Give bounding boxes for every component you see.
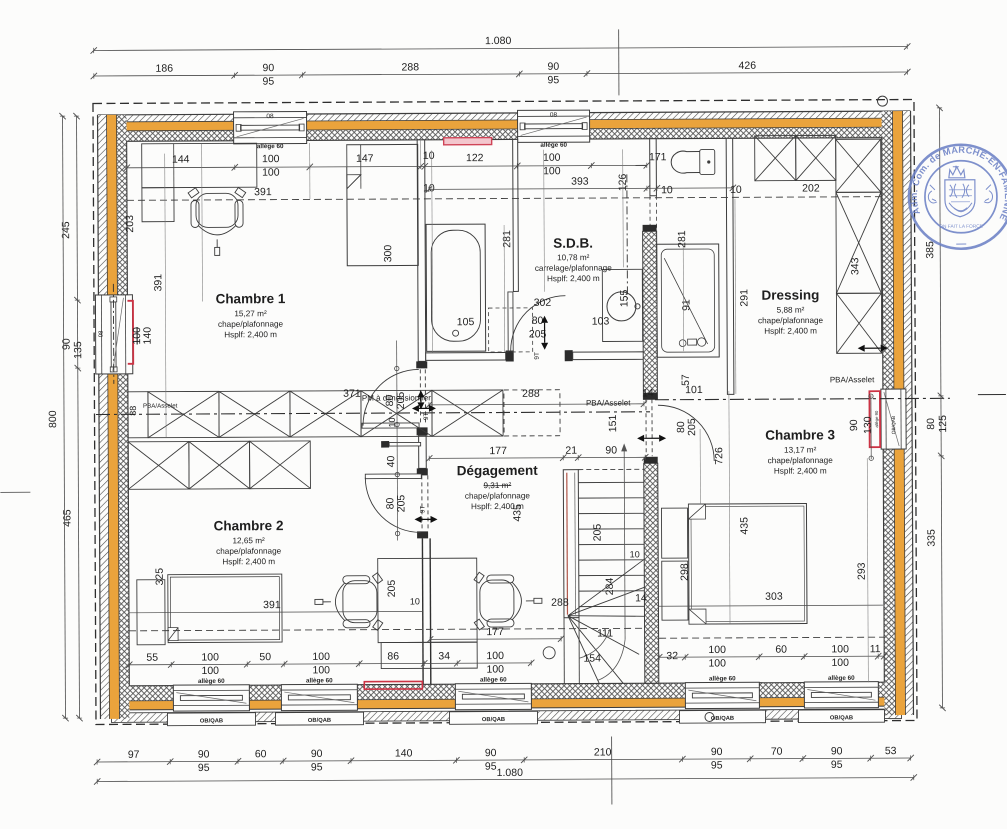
svg-text:ON FAIT LA FORCE: ON FAIT LA FORCE xyxy=(939,224,983,230)
svg-text:9,31 m²: 9,31 m² xyxy=(483,481,511,490)
svg-text:95: 95 xyxy=(485,761,497,773)
svg-text:Hsplf: 2,400 m: Hsplf: 2,400 m xyxy=(222,557,275,566)
svg-text:105: 105 xyxy=(457,316,475,328)
svg-text:144: 144 xyxy=(172,154,190,166)
svg-text:205: 205 xyxy=(592,524,604,542)
svg-text:281: 281 xyxy=(676,230,688,248)
svg-text:140: 140 xyxy=(142,327,154,345)
svg-text:302: 302 xyxy=(534,297,552,309)
svg-text:80: 80 xyxy=(532,315,544,327)
svg-text:08: 08 xyxy=(99,330,105,337)
svg-text:291: 291 xyxy=(738,289,750,307)
svg-text:S.D.B.: S.D.B. xyxy=(553,236,593,251)
svg-text:15,27 m²: 15,27 m² xyxy=(234,309,267,318)
svg-text:95: 95 xyxy=(547,74,559,86)
svg-text:186: 186 xyxy=(156,63,174,75)
svg-text:177: 177 xyxy=(486,626,504,638)
svg-text:1.080: 1.080 xyxy=(497,767,523,779)
svg-text:Hsplf: 2,400 m: Hsplf: 2,400 m xyxy=(224,330,277,339)
svg-text:95: 95 xyxy=(831,759,843,771)
svg-text:205: 205 xyxy=(395,495,407,513)
svg-text:210: 210 xyxy=(594,746,612,758)
svg-text:140: 140 xyxy=(395,747,413,759)
svg-text:325: 325 xyxy=(154,568,166,586)
svg-text:203: 203 xyxy=(124,215,136,233)
svg-text:151: 151 xyxy=(607,415,619,433)
svg-text:80: 80 xyxy=(925,418,937,430)
svg-text:10: 10 xyxy=(630,549,640,559)
svg-text:95: 95 xyxy=(263,76,275,88)
svg-text:91: 91 xyxy=(680,299,692,311)
svg-text:90: 90 xyxy=(311,748,323,760)
svg-text:Hsplf: 2,400 m: Hsplf: 2,400 m xyxy=(764,326,817,335)
svg-text:10: 10 xyxy=(730,184,742,196)
svg-text:allège 60: allège 60 xyxy=(709,675,736,682)
svg-text:100: 100 xyxy=(708,644,726,656)
svg-text:—: — xyxy=(956,239,966,250)
svg-text:12,65 m²: 12,65 m² xyxy=(232,536,265,545)
svg-text:391: 391 xyxy=(152,274,164,292)
svg-text:100: 100 xyxy=(831,657,849,669)
svg-text:allège 60: allège 60 xyxy=(828,675,855,682)
svg-text:435: 435 xyxy=(739,517,751,535)
svg-text:10: 10 xyxy=(410,596,420,606)
svg-text:371: 371 xyxy=(343,388,361,400)
svg-text:OB/QAB: OB/QAB xyxy=(308,718,331,724)
svg-text:allège 60: allège 60 xyxy=(540,142,567,149)
svg-text:allège 60: allège 60 xyxy=(480,676,507,683)
svg-text:allège 60: allège 60 xyxy=(306,677,333,684)
svg-text:100: 100 xyxy=(262,153,280,165)
svg-text:391: 391 xyxy=(254,186,272,198)
svg-text:171: 171 xyxy=(649,151,667,163)
svg-text:13,17 m²: 13,17 m² xyxy=(784,445,817,454)
svg-text:726: 726 xyxy=(713,447,725,465)
svg-text:allège 60: allège 60 xyxy=(257,143,284,150)
svg-text:chape/plafonnage: chape/plafonnage xyxy=(768,456,834,465)
svg-text:343: 343 xyxy=(849,257,861,275)
svg-text:100: 100 xyxy=(486,663,504,675)
svg-text:allège 60: allège 60 xyxy=(198,678,225,685)
svg-text:385: 385 xyxy=(924,241,936,259)
svg-text:130: 130 xyxy=(862,416,874,434)
svg-text:300: 300 xyxy=(382,245,394,263)
svg-text:100: 100 xyxy=(543,152,561,164)
svg-text:95: 95 xyxy=(311,761,323,773)
svg-text:Chambre 2: Chambre 2 xyxy=(214,518,284,533)
svg-text:60: 60 xyxy=(255,748,267,760)
svg-text:OB/QAB: OB/QAB xyxy=(482,717,505,723)
svg-text:chape/plafonnage: chape/plafonnage xyxy=(218,320,284,329)
svg-text:95: 95 xyxy=(198,762,210,774)
svg-text:50: 50 xyxy=(259,651,271,663)
svg-text:PBA/Asselet: PBA/Asselet xyxy=(586,398,631,407)
svg-text:chape/plafonnage: chape/plafonnage xyxy=(758,316,824,325)
svg-text:40: 40 xyxy=(385,456,397,468)
svg-text:100: 100 xyxy=(486,650,504,662)
svg-text:chape/plafonnage: chape/plafonnage xyxy=(216,547,282,556)
svg-text:90: 90 xyxy=(547,61,559,73)
svg-text:90: 90 xyxy=(711,746,723,758)
svg-text:9T: 9T xyxy=(419,506,426,514)
svg-text:391: 391 xyxy=(263,599,281,611)
svg-text:86: 86 xyxy=(387,651,399,663)
svg-text:100: 100 xyxy=(831,643,849,655)
svg-text:205: 205 xyxy=(529,328,547,340)
svg-text:154: 154 xyxy=(583,653,601,665)
svg-text:100: 100 xyxy=(543,165,561,177)
svg-text:14: 14 xyxy=(642,387,654,399)
svg-text:57: 57 xyxy=(680,374,692,386)
svg-text:147: 147 xyxy=(356,153,374,165)
svg-text:Chambre 3: Chambre 3 xyxy=(765,427,835,442)
svg-text:284: 284 xyxy=(604,578,616,596)
svg-text:426: 426 xyxy=(739,60,757,72)
svg-text:288: 288 xyxy=(551,597,569,609)
svg-text:53: 53 xyxy=(885,745,897,757)
svg-text:9T: 9T xyxy=(534,352,541,360)
svg-text:100: 100 xyxy=(262,167,280,179)
svg-text:288: 288 xyxy=(522,388,540,400)
svg-text:205: 205 xyxy=(386,580,398,598)
svg-text:32: 32 xyxy=(666,650,678,662)
svg-text:111: 111 xyxy=(597,627,613,639)
svg-text:88: 88 xyxy=(128,406,138,416)
svg-text:34: 34 xyxy=(438,650,450,662)
svg-text:293: 293 xyxy=(856,562,868,580)
svg-text:122: 122 xyxy=(466,152,484,164)
svg-text:100: 100 xyxy=(201,665,219,677)
svg-text:205: 205 xyxy=(686,418,698,436)
svg-text:OB/QAB: OB/QAB xyxy=(891,416,897,434)
svg-text:90: 90 xyxy=(198,748,210,760)
svg-text:chape/plafonnage: chape/plafonnage xyxy=(465,491,531,500)
svg-text:125: 125 xyxy=(937,415,949,433)
svg-text:90: 90 xyxy=(262,62,274,74)
svg-text:465: 465 xyxy=(61,509,73,527)
svg-text:10: 10 xyxy=(661,184,673,196)
svg-text:97: 97 xyxy=(128,749,140,761)
svg-text:281: 281 xyxy=(501,230,513,248)
svg-text:90: 90 xyxy=(848,419,860,431)
svg-text:90: 90 xyxy=(605,444,617,456)
svg-text:Hsplf: 2,400 m: Hsplf: 2,400 m xyxy=(547,274,600,283)
svg-text:allège 90: allège 90 xyxy=(874,410,879,428)
svg-text:OB/QAB: OB/QAB xyxy=(200,718,223,724)
svg-text:70: 70 xyxy=(771,746,783,758)
svg-text:90: 90 xyxy=(831,745,843,757)
svg-text:Hsplf: 2,400 m: Hsplf: 2,400 m xyxy=(774,466,827,475)
svg-text:11: 11 xyxy=(870,643,881,655)
svg-text:08: 08 xyxy=(550,112,558,119)
svg-text:55: 55 xyxy=(146,652,158,664)
svg-text:245: 245 xyxy=(60,221,72,239)
svg-text:95: 95 xyxy=(711,759,723,771)
svg-text:9T: 9T xyxy=(423,413,430,421)
svg-text:10: 10 xyxy=(387,418,397,428)
svg-text:5,88 m²: 5,88 m² xyxy=(777,306,805,315)
svg-text:08: 08 xyxy=(266,113,274,120)
svg-text:100: 100 xyxy=(708,657,726,669)
svg-text:298: 298 xyxy=(679,563,691,581)
svg-text:21: 21 xyxy=(565,445,577,457)
svg-text:288: 288 xyxy=(402,61,420,73)
svg-text:Chambre 1: Chambre 1 xyxy=(216,291,286,306)
svg-text:90: 90 xyxy=(61,338,73,350)
svg-text:PBA/Asselet: PBA/Asselet xyxy=(830,375,875,384)
svg-text:135: 135 xyxy=(72,341,84,359)
svg-text:800: 800 xyxy=(47,410,59,428)
svg-text:90: 90 xyxy=(485,747,497,759)
svg-text:PBA/Asselet: PBA/Asselet xyxy=(143,403,178,410)
svg-text:Dégagement: Dégagement xyxy=(457,463,539,478)
svg-text:Dressing: Dressing xyxy=(761,287,819,302)
svg-text:100: 100 xyxy=(312,664,330,676)
svg-text:60: 60 xyxy=(775,644,787,656)
svg-text:10,78 m²: 10,78 m² xyxy=(557,253,590,262)
svg-text:100: 100 xyxy=(201,651,219,663)
svg-text:435: 435 xyxy=(511,504,523,522)
svg-text:202: 202 xyxy=(802,182,820,194)
svg-text:205: 205 xyxy=(395,392,407,410)
svg-text:14: 14 xyxy=(635,592,647,604)
svg-text:177: 177 xyxy=(489,445,507,457)
svg-text:OB/QAB: OB/QAB xyxy=(830,715,853,721)
svg-text:393: 393 xyxy=(571,176,589,188)
svg-text:103: 103 xyxy=(592,315,610,327)
svg-text:100: 100 xyxy=(312,651,330,663)
svg-text:303: 303 xyxy=(765,591,783,603)
svg-text:155: 155 xyxy=(618,289,630,307)
svg-text:335: 335 xyxy=(926,529,938,547)
svg-text:1.080: 1.080 xyxy=(485,35,511,47)
svg-text:carrelage/plafonnage: carrelage/plafonnage xyxy=(535,263,612,272)
svg-text:10: 10 xyxy=(423,150,435,162)
